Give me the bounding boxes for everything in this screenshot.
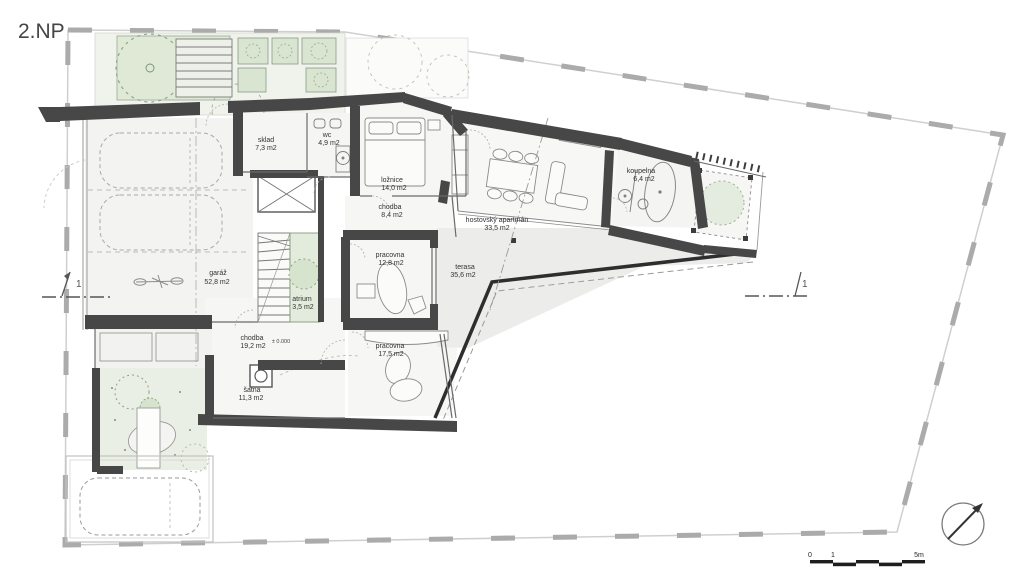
north-arrow-icon bbox=[942, 503, 984, 545]
stairs bbox=[258, 233, 290, 322]
svg-text:12,8 m2: 12,8 m2 bbox=[378, 260, 403, 267]
floor-plan-svg: 1 1 sklad 7,3 m2 wc 4,9 m2 ložnice 14,0 … bbox=[0, 0, 1024, 586]
scale-bar: 0 1 5m bbox=[808, 552, 925, 566]
floor-plan-page: 1 1 sklad 7,3 m2 wc 4,9 m2 ložnice 14,0 … bbox=[0, 0, 1024, 586]
scale-end: 5m bbox=[914, 552, 924, 559]
garden-steps bbox=[176, 39, 232, 97]
svg-text:7,3 m2: 7,3 m2 bbox=[255, 145, 277, 152]
svg-text:11,3 m2: 11,3 m2 bbox=[239, 395, 264, 402]
section-label-left: 1 bbox=[76, 279, 82, 290]
room-label-terasa: terasa bbox=[455, 264, 475, 271]
svg-text:35,6 m2: 35,6 m2 bbox=[450, 272, 475, 279]
room-label-pracovna-128: pracovna bbox=[376, 252, 405, 259]
svg-text:17,5 m2: 17,5 m2 bbox=[378, 351, 403, 358]
section-label-right: 1 bbox=[802, 279, 808, 290]
scale-one: 1 bbox=[831, 552, 835, 559]
room-label-koupelna: koupelna bbox=[627, 168, 656, 175]
roof-over-bedroom bbox=[346, 35, 469, 98]
room-label-atrium: atrium bbox=[292, 296, 312, 303]
atrium-tree bbox=[289, 259, 319, 289]
svg-text:4,9 m2: 4,9 m2 bbox=[318, 140, 340, 147]
level-mark: ± 0.000 bbox=[272, 339, 290, 345]
svg-text:19,2 m2: 19,2 m2 bbox=[240, 343, 265, 350]
room-label-wc: wc bbox=[322, 132, 332, 139]
room-label-apartman: hostovský apartmán bbox=[466, 217, 529, 224]
room-label-loznice: ložnice bbox=[381, 177, 403, 184]
page-title: 2.NP bbox=[18, 20, 65, 43]
svg-text:33,5 m2: 33,5 m2 bbox=[484, 225, 509, 232]
room-label-garaz: garáž bbox=[209, 270, 227, 277]
room-label-pracovna-175: pracovna bbox=[376, 343, 405, 350]
car-outline-parking bbox=[80, 478, 200, 535]
room-label-satna: šatna bbox=[243, 387, 260, 394]
svg-text:52,8 m2: 52,8 m2 bbox=[204, 279, 229, 286]
svg-text:6,4 m2: 6,4 m2 bbox=[633, 176, 655, 183]
scale-start: 0 bbox=[808, 552, 812, 559]
room-label-chodba-192: chodba bbox=[241, 335, 264, 342]
room-label-chodba-84: chodba bbox=[379, 204, 402, 211]
svg-text:14,0 m2: 14,0 m2 bbox=[381, 185, 406, 192]
room-label-sklad: sklad bbox=[258, 137, 274, 144]
svg-text:3,5 m2: 3,5 m2 bbox=[292, 304, 314, 311]
svg-text:8,4 m2: 8,4 m2 bbox=[381, 212, 403, 219]
